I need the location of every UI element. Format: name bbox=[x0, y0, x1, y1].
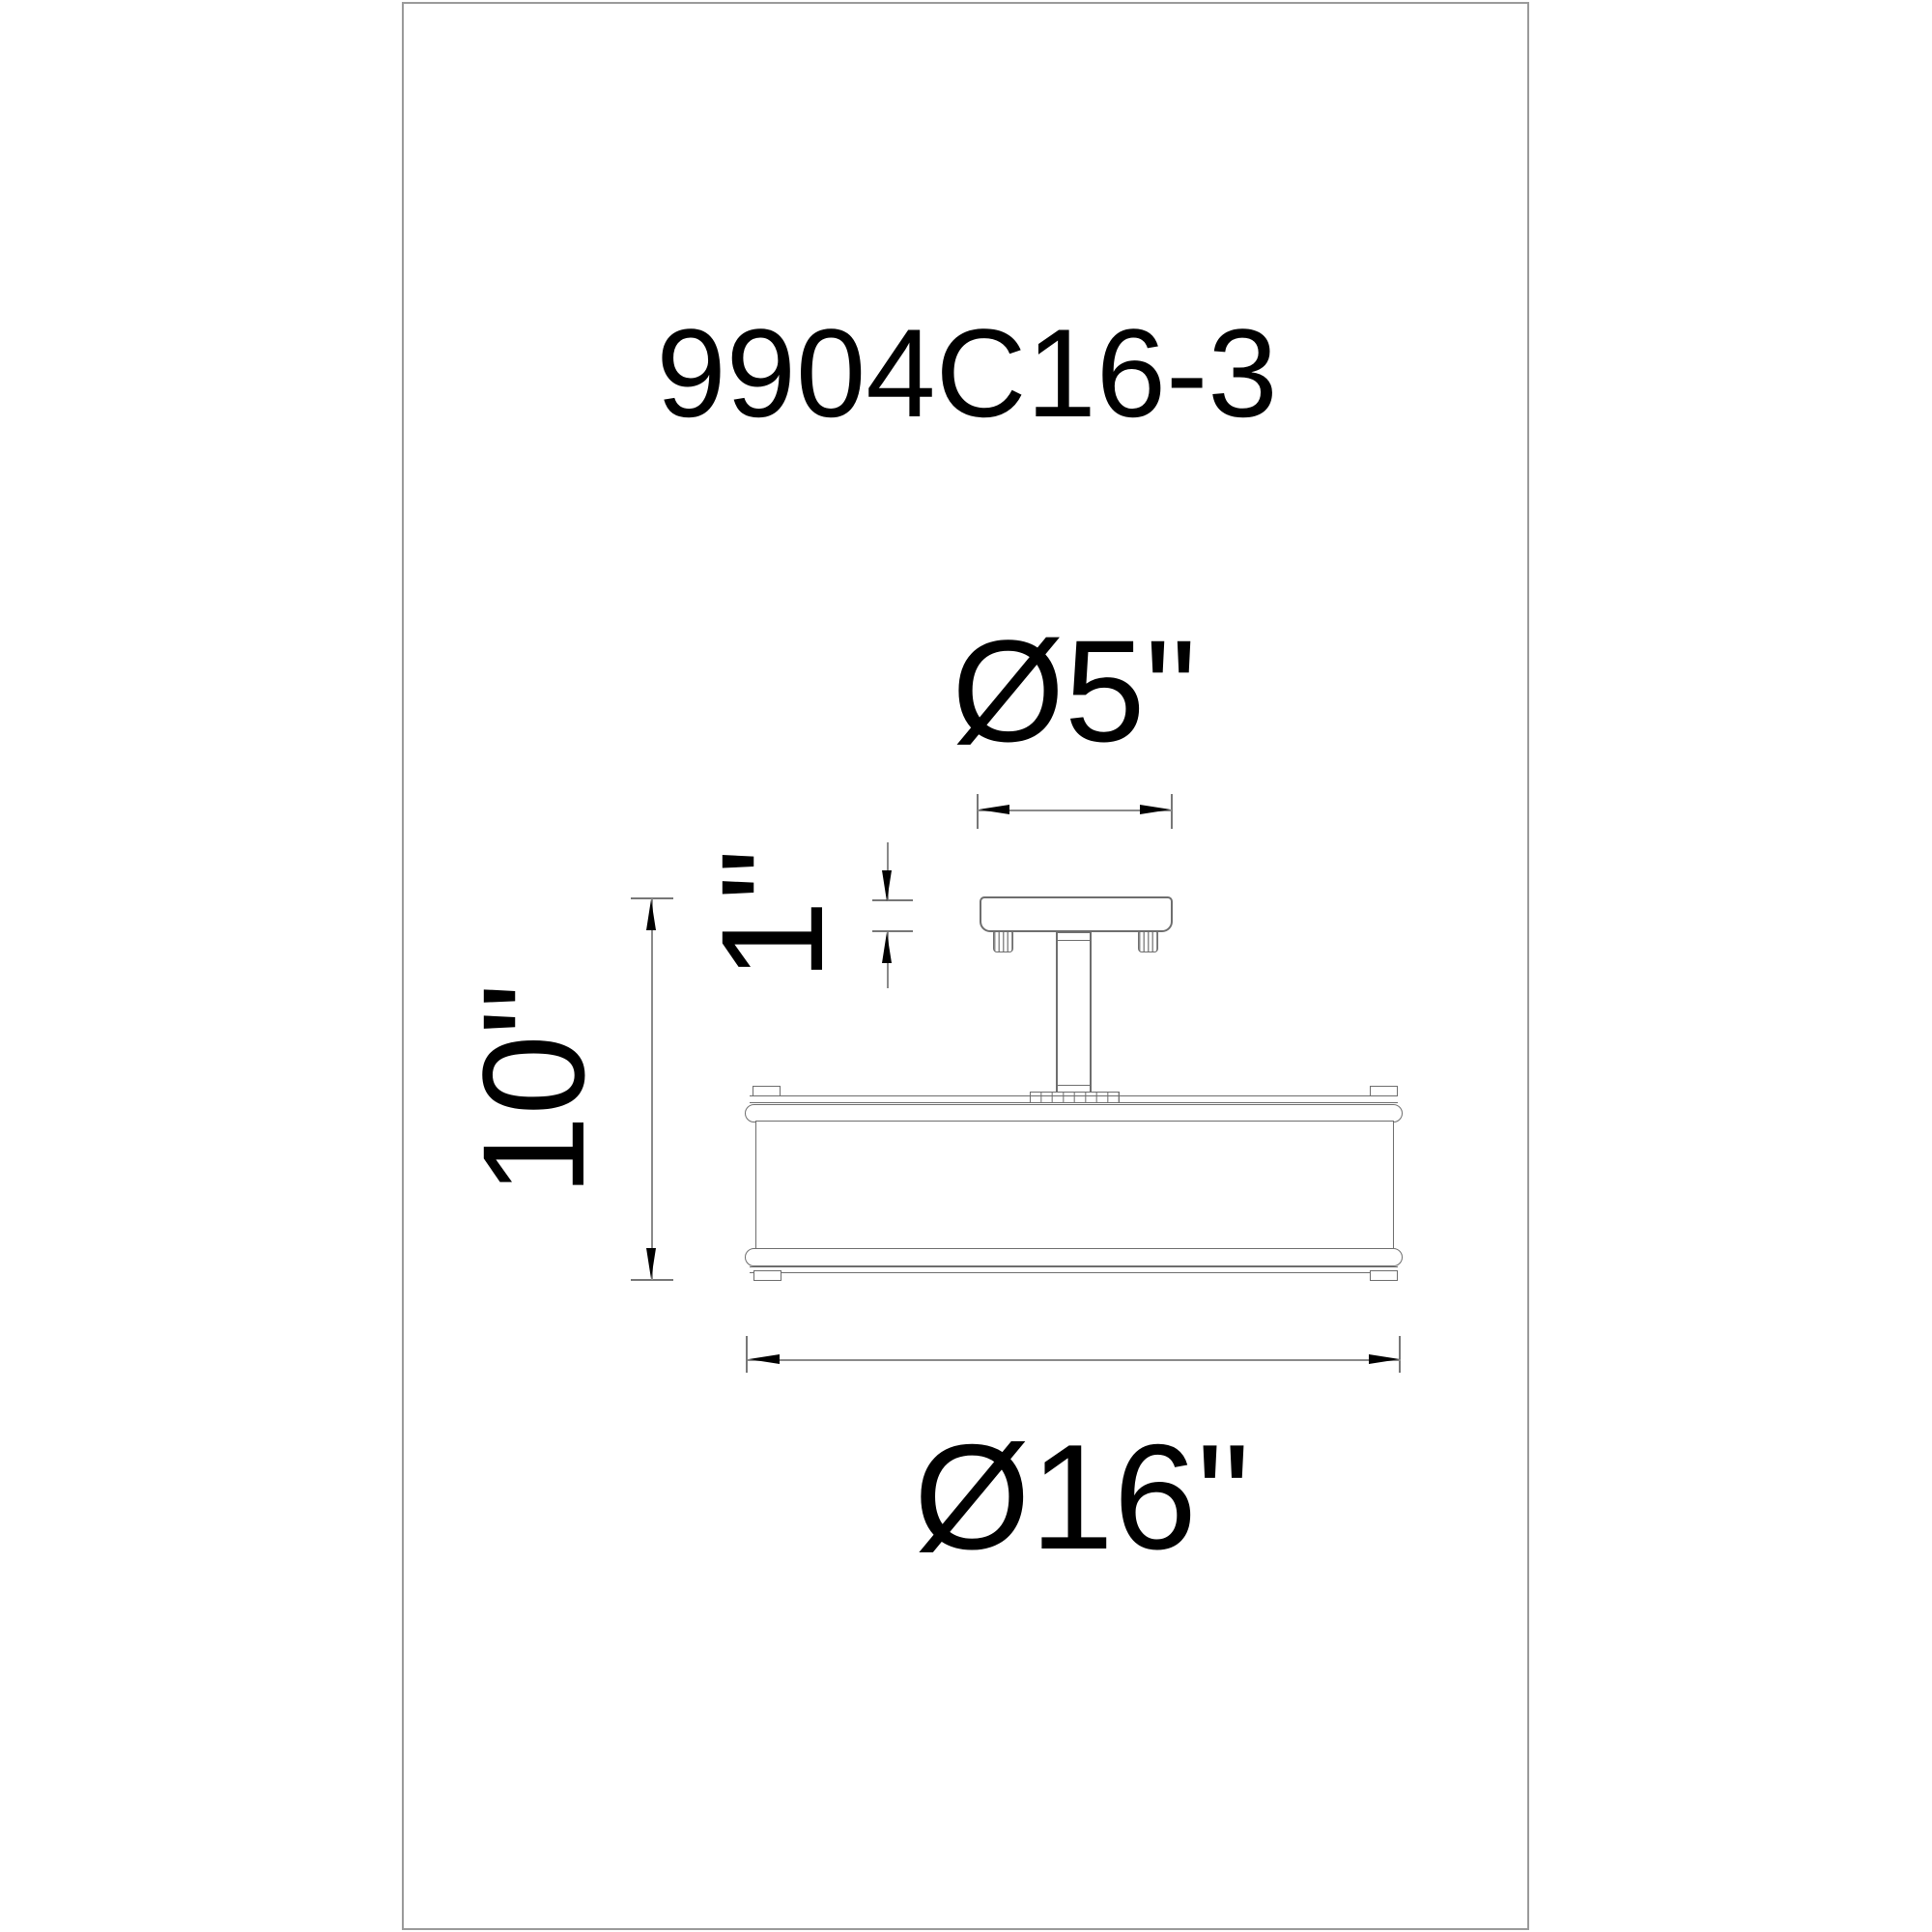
extension-tick bbox=[872, 899, 913, 901]
stem-joint-line bbox=[1056, 940, 1092, 941]
dim-canopy-diameter-label: Ø5" bbox=[881, 618, 1267, 763]
arrow-left-icon bbox=[979, 805, 1009, 814]
mounting-stem bbox=[1056, 931, 1092, 1100]
arrow-down-icon bbox=[646, 1248, 656, 1279]
shade-bottom-tab-left bbox=[753, 1270, 781, 1281]
model-number: 9904C16-3 bbox=[581, 307, 1353, 440]
dim-canopy-height-label: 1" bbox=[699, 849, 844, 981]
arrow-down-icon bbox=[882, 870, 892, 901]
drum-shade-body bbox=[755, 1121, 1394, 1250]
shade-bottom-tab-right bbox=[1370, 1270, 1398, 1281]
dim-shade-diameter-label: Ø16" bbox=[889, 1422, 1275, 1572]
extension-tick bbox=[1171, 794, 1173, 829]
finial-screw-right bbox=[1138, 931, 1158, 952]
extension-tick bbox=[746, 1336, 748, 1373]
arrow-left-icon bbox=[749, 1354, 780, 1364]
shade-top-trim bbox=[750, 1095, 1398, 1103]
dimension-line bbox=[748, 1359, 1401, 1361]
arrow-up-icon bbox=[646, 899, 656, 930]
finial-screw-left bbox=[993, 931, 1013, 952]
dimension-line bbox=[651, 898, 653, 1280]
shade-bottom-trim bbox=[750, 1266, 1398, 1273]
arrow-right-icon bbox=[1369, 1354, 1400, 1364]
extension-tick bbox=[872, 930, 913, 932]
sheet-border bbox=[402, 2, 1529, 1930]
ceiling-canopy bbox=[980, 896, 1173, 932]
spec-sheet: 9904C16-3 Ø5" 1" 10" Ø16" bbox=[0, 0, 1932, 1932]
arrow-up-icon bbox=[882, 932, 892, 963]
shade-bottom-ring bbox=[745, 1248, 1403, 1266]
arrow-right-icon bbox=[1140, 805, 1171, 814]
stem-joint-line bbox=[1056, 1085, 1092, 1086]
dim-fixture-height-label: 10" bbox=[461, 983, 606, 1196]
